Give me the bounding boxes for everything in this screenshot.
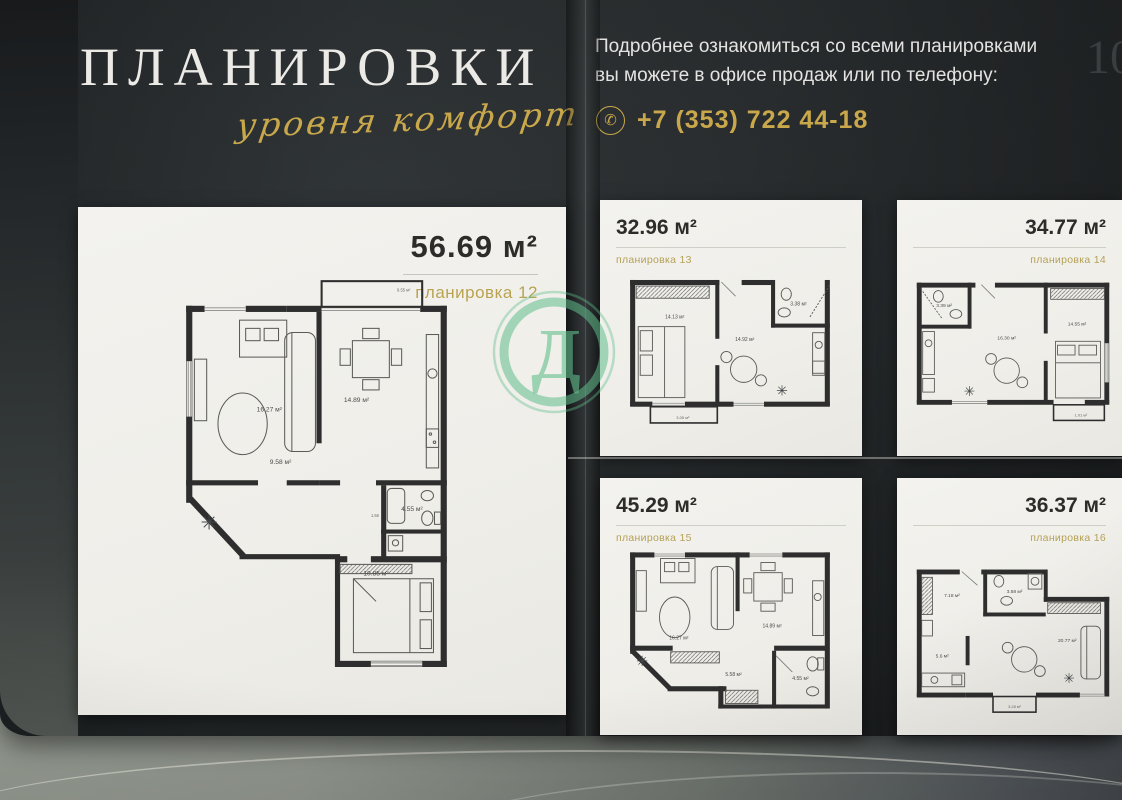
card13-plan-label: планировка 13 [616, 254, 846, 266]
page-number: 10 [1086, 30, 1122, 85]
plan-card-featured: 56.69 м² планировка 12 [78, 207, 566, 715]
room-label-balcony: 9.55 м² [397, 287, 411, 292]
room-label-bedroom: 14.55 м² [1068, 322, 1087, 328]
card15-plan-label: планировка 15 [616, 532, 846, 544]
info-line-1: Подробнее ознакомиться со всеми планиров… [595, 36, 1037, 57]
card14-plan-label: планировка 14 [913, 254, 1106, 266]
room-label-bath: 3.38 м² [790, 301, 807, 307]
room-label-living: 16.27 м² [669, 636, 689, 642]
page-fold-line [585, 0, 586, 736]
phone-icon: ✆ [596, 106, 625, 135]
card15-header: 45.29 м² планировка 15 [616, 494, 846, 544]
featured-area: 56.69 м² [403, 229, 538, 265]
room-label-hall: 7.18 м² [944, 593, 960, 599]
room-label-kitchen: 14.89 м² [344, 397, 370, 404]
card16-area: 36.37 м² [913, 494, 1106, 518]
plan-card-13: 32.96 м² планировка 13 [600, 200, 862, 456]
card13-area: 32.96 м² [616, 216, 846, 240]
card15-area: 45.29 м² [616, 494, 846, 518]
room-label-living: 16.27 м² [257, 406, 283, 413]
phone-number: +7 (353) 722 44-18 [637, 106, 868, 135]
svg-text:✳: ✳ [964, 384, 975, 399]
header-divider [913, 247, 1106, 248]
room-label-balcony: 3.05 м² [676, 415, 690, 420]
room-label-kitchen: 14.89 м² [762, 623, 782, 629]
floorplan-13: ✳ 14.13 м² 14.92 м² 3.38 м² 3.05 м² [622, 270, 840, 438]
room-label-living: 14.92 м² [735, 337, 755, 343]
page-fold-shadow [566, 0, 600, 736]
room-label-living: 20.77 м² [1058, 638, 1077, 644]
room-label-balcony: 1.01 м² [1075, 413, 1088, 418]
room-label-living: 16.30 м² [997, 335, 1016, 341]
info-line-2: вы можете в офисе продаж или по телефону… [595, 65, 998, 86]
phone-row: ✆ +7 (353) 722 44-18 [596, 106, 868, 135]
plan-card-16: 36.37 м² планировка 16 [897, 478, 1122, 735]
room-label-wc: 1.56 [371, 513, 380, 518]
svg-text:✳: ✳ [1063, 671, 1074, 686]
plan-card-14: 34.77 м² планировка 14 [897, 200, 1122, 456]
table-highlight-line [0, 750, 1122, 800]
room-label-balcony: 3.28 м² [1008, 704, 1021, 709]
page-gutter-highlight [568, 457, 1122, 459]
card14-header: 34.77 м² планировка 14 [913, 216, 1106, 266]
room-label-bath: 4.55 м² [792, 676, 809, 682]
card14-area: 34.77 м² [913, 216, 1106, 240]
plan-card-15: 45.29 м² планировка 15 [600, 478, 862, 735]
room-label-bath: 4.55 м² [401, 506, 423, 513]
room-label-bedroom: 14.13 м² [665, 315, 685, 321]
room-label-bedroom: 10.85 м² [363, 571, 389, 578]
floorplan-14: ✳ 3.39 м² 16.30 м² 14.55 м² 1.01 м² [909, 270, 1119, 438]
page-title: ПЛАНИРОВКИ [80, 36, 543, 98]
header-divider [913, 525, 1106, 526]
svg-text:✳: ✳ [201, 511, 218, 534]
floorplan-12: ✳ 16.27 м² 14.89 м² 9.58 м² 4.55 м² 1.56… [186, 275, 448, 667]
floorplan-16: ✳ 7.18 м² 3.58 м² 5.6 м² 20.77 м² 3.28 м… [909, 548, 1119, 720]
header-divider [616, 525, 846, 526]
room-label-bath: 3.58 м² [1007, 589, 1023, 595]
card13-header: 32.96 м² планировка 13 [616, 216, 846, 266]
card16-plan-label: планировка 16 [913, 532, 1106, 544]
info-text: Подробнее ознакомиться со всеми планиров… [595, 33, 1075, 90]
room-label-hall: 9.58 м² [270, 459, 292, 466]
table-highlight-line-2 [420, 772, 1122, 800]
floorplan-15: ✳ 16.27 м² 14.89 м² 5.58 м² 4.55 м² [622, 544, 840, 722]
card16-header: 36.37 м² планировка 16 [913, 494, 1106, 544]
brochure-photo: ПЛАНИРОВКИ уровня комфорт Подробнее озна… [0, 0, 1122, 800]
svg-text:✳: ✳ [636, 654, 648, 670]
svg-text:✳: ✳ [776, 384, 788, 400]
header-divider [616, 247, 846, 248]
page-left-edge-shadow [0, 0, 78, 736]
room-label-hall: 5.58 м² [725, 672, 742, 678]
room-label-kitchen: 5.6 м² [936, 653, 949, 659]
room-label-bath: 3.39 м² [936, 303, 952, 309]
